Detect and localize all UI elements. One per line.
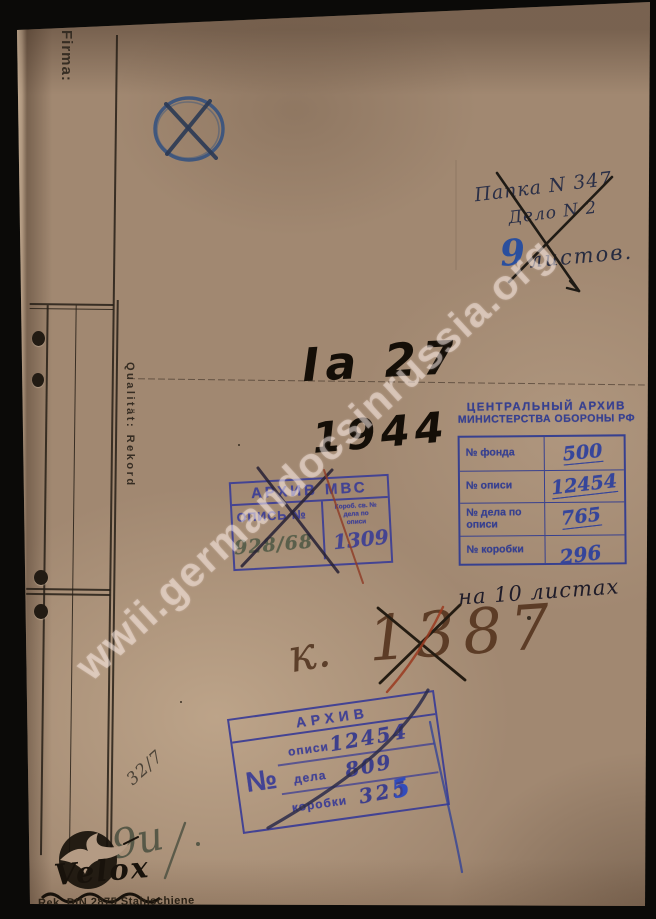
quality-label: Qualität: Rekord	[124, 362, 136, 488]
camo-row-value: 765	[560, 504, 602, 530]
firma-label: Firma:	[58, 30, 75, 82]
folder-cover-paper: Firma: Qualität: Rekord Папка N 347 Дело…	[0, 0, 656, 919]
stamp-camo-title2: МИНИСТЕРСТВА ОБОРОНЫ РФ	[451, 412, 641, 426]
box-number-prefix: к.	[284, 623, 335, 683]
camo-row-label: № фонда	[460, 437, 544, 471]
stamp-camo: ЦЕНТРАЛЬНЫЙ АРХИВ МИНИСТЕРСТВА ОБОРОНЫ Р…	[451, 400, 642, 566]
camo-row-value: 12454	[550, 470, 618, 499]
binder-hole-1	[32, 331, 45, 346]
rail-horizontal-1	[30, 303, 114, 306]
title-code: Ia 27	[301, 330, 462, 392]
binder-hole-4	[34, 604, 48, 619]
cross-out-stroke-archive2	[250, 682, 470, 882]
camo-row-label: № дела по описи	[460, 503, 544, 536]
camo-row-value: 500	[562, 440, 604, 466]
rail-vertical-2	[69, 306, 77, 856]
binder-hole-3	[34, 570, 48, 585]
cross-out-x-mvs	[235, 460, 375, 590]
rail-horizontal-2b	[26, 593, 110, 596]
camo-row-label: № коробки	[460, 536, 544, 564]
cross-out-x-top-right	[440, 160, 656, 400]
camo-row-label: № описи	[460, 471, 544, 503]
rail-horizontal-1b	[30, 308, 114, 310]
scanned-document: Firma: Qualität: Rekord Папка N 347 Дело…	[0, 0, 656, 919]
binder-hole-2	[32, 373, 44, 387]
paper-speck	[180, 701, 182, 703]
circled-x-mark	[142, 88, 237, 173]
velox-spec-text: Rek. DIN 2875 Stahlschiene	[38, 895, 195, 910]
stamp-camo-table: № фонда 500 № описи 12454 № дела по опис…	[458, 434, 627, 565]
rail-horizontal-2	[26, 588, 110, 591]
paper-speck	[238, 444, 240, 446]
